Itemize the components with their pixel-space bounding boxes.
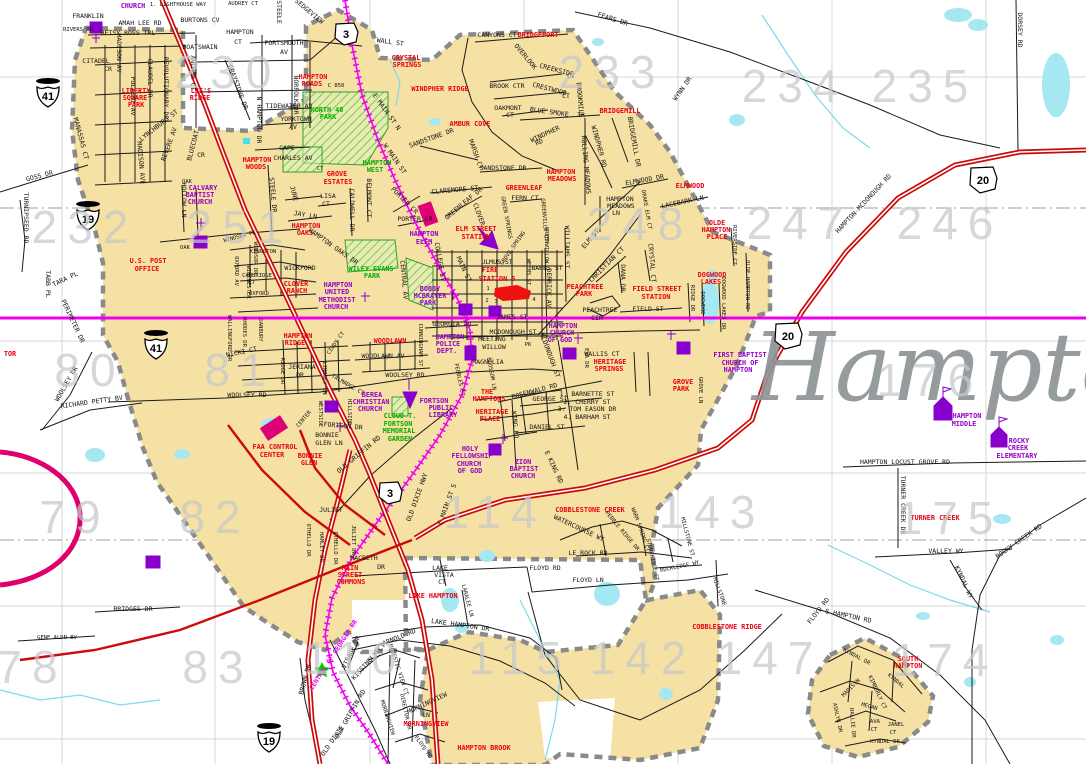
map-label: PERIMETER DR — [59, 298, 86, 344]
map-label: VALLEY WY — [928, 547, 963, 555]
church-icon — [563, 348, 576, 359]
map-label: GREENWILLOW — [543, 227, 549, 264]
map-label: 4. BARHAM ST — [564, 413, 611, 421]
map-label: WESTSIDE — [317, 401, 323, 428]
map-label: CHURCH — [358, 405, 383, 413]
map-label: C 850 — [328, 83, 345, 89]
map-label: PARK — [364, 272, 381, 280]
map-label: LAKES — [701, 278, 721, 286]
map-label: FIRE — [482, 266, 498, 274]
map-label: FERN CT — [511, 194, 538, 202]
map-label: KYNDAL WY — [953, 564, 975, 599]
map-label: 115 — [468, 632, 571, 684]
map-label: HAMPTON LOCUST GROVE RD — [860, 458, 950, 466]
map-label: GOSS DR — [25, 169, 54, 184]
map-label: HAMLET DR — [318, 532, 324, 562]
map-label: FLOYD RD — [529, 564, 560, 572]
map-label: AUDREY CT — [228, 1, 258, 7]
map-label: 114 — [443, 486, 546, 538]
map-label: LINDSEY LN — [321, 361, 327, 394]
map-label: 82 — [179, 491, 250, 543]
map-label: ROCKLEDGE WY — [660, 560, 701, 574]
map-label: 143 — [659, 486, 766, 538]
map-label: PARK — [576, 290, 593, 298]
church-icon — [459, 304, 472, 315]
map-label: AMAH LEE RD — [118, 19, 161, 27]
svg-text:3: 3 — [387, 488, 393, 500]
map-label: BROOK CTR — [489, 82, 524, 90]
map-label: WOODS — [246, 163, 266, 171]
map-label: GARDEN — [388, 435, 413, 443]
map-label: 110 — [303, 632, 406, 684]
map-label: 174 — [892, 634, 999, 686]
map-label: BONNIE — [315, 431, 339, 439]
pond — [944, 8, 972, 22]
map-label: 81 — [204, 344, 275, 396]
map-label: COBBLESTONE CREEK — [555, 506, 625, 514]
map-label: SANDSTONE DR — [480, 164, 527, 172]
map-label: MILLSTONE — [711, 577, 727, 607]
map-label: BRIDGEMILL — [600, 107, 641, 115]
map-label: FIELD STREET — [632, 285, 681, 293]
pond — [174, 449, 190, 459]
map-label: LAKE HAMPTON — [408, 592, 457, 600]
map-label: ULMUS ST — [481, 258, 512, 266]
map-label: MEMORIAL — [383, 427, 416, 435]
map-label: 1. LIGHTHOUSE WAY — [150, 2, 207, 8]
map-label: TARA PL — [51, 270, 79, 289]
map-label: CT — [871, 727, 878, 733]
map-label: PARK — [673, 385, 690, 393]
map-label: 3 — [494, 299, 497, 305]
map-label: N HAMPTON DR — [255, 97, 263, 144]
map-label: ELM STREET — [456, 225, 497, 233]
map-label: SPRINGS — [393, 61, 422, 69]
street — [668, 539, 673, 562]
map-label: U.S. POST — [130, 257, 167, 265]
map-label: JULIET DR — [350, 525, 356, 555]
ga-20-shield: 20 — [970, 167, 997, 193]
map-label: PARK — [320, 113, 337, 121]
map-label: COBBLESTONE RIDGE — [692, 623, 762, 631]
map-label: CITADEL — [82, 57, 109, 65]
map-label: ELEM — [416, 238, 432, 246]
map-label: HAMPTON — [226, 28, 253, 36]
map-label: CREEK — [1008, 444, 1029, 452]
map-label: DEPT. — [437, 347, 457, 355]
svg-text:20: 20 — [977, 175, 989, 187]
map-label: CHURCH — [511, 472, 536, 480]
map-label: WICKFORD — [284, 264, 315, 272]
map-label: PLACE — [480, 415, 500, 423]
map-label: RIDGE DR — [279, 358, 285, 385]
pond — [85, 448, 105, 462]
map-label: EVA DR — [583, 348, 589, 369]
pond — [592, 38, 604, 46]
map-label: DANA DR — [619, 264, 627, 291]
map-label: BURTONS CV — [180, 16, 219, 24]
map-label: 1 — [486, 286, 489, 292]
map-label: MORNINGVIEW — [403, 720, 449, 728]
map-label: 234 — [742, 60, 849, 112]
map-label: PK — [525, 342, 532, 348]
map-label: BELMONT CT — [365, 178, 373, 217]
map-label: STEELE — [275, 0, 283, 24]
map-label: TURNIPSEED RD — [22, 193, 30, 244]
school-building-icon — [991, 427, 1007, 447]
map-label: CT — [438, 578, 446, 586]
map-label: YORKTOWN — [280, 115, 311, 123]
map-label: WILLIAMS ST — [563, 225, 571, 268]
map-label: CHARLES AV — [273, 154, 312, 162]
map-label: 251 — [187, 201, 294, 253]
map-label: GROVE — [327, 170, 347, 178]
map-label: MEETING — [478, 335, 505, 343]
church-icon — [677, 342, 690, 354]
map-label: AMBUR COVE — [450, 120, 491, 128]
map-label: 142 — [590, 632, 697, 684]
map-label: 246 — [897, 197, 1004, 249]
pond — [429, 118, 441, 126]
church-icon — [146, 556, 160, 568]
map-label: GLEN LN — [315, 439, 342, 447]
map-label: 147 — [717, 632, 824, 684]
map-label: 247 — [747, 197, 854, 249]
map-label: AVA — [870, 719, 881, 725]
map-label: 248 — [587, 198, 694, 250]
map-label: CHURCH — [324, 303, 349, 311]
map-label: OXFORD — [249, 291, 269, 297]
map-label: RHODES DR — [241, 317, 247, 347]
pond — [659, 688, 673, 700]
map-label: REVOLUTIONARY DR — [162, 57, 170, 120]
map-label: CENTER — [260, 451, 285, 459]
map-label: 80 — [54, 344, 125, 396]
map-label: ESTATES — [324, 178, 353, 186]
map-label: 175 — [897, 492, 1004, 544]
pond — [1050, 635, 1064, 645]
map-label: CIR — [591, 314, 603, 322]
us-19-shield: 19 — [257, 723, 281, 752]
map-label: DERRICK AV — [545, 268, 553, 307]
map-label: HAMPTON — [953, 412, 982, 420]
map-label: MIDDLE — [952, 420, 977, 428]
map-label: CT — [317, 166, 324, 172]
map-label: WEST — [367, 166, 383, 174]
map-label: JULIET — [319, 506, 343, 514]
street — [40, 403, 142, 430]
map-label: OLD DIXIE — [319, 724, 346, 758]
map-label: FIELD ST — [632, 305, 663, 313]
map-label: SPRINGS — [595, 365, 624, 373]
map-label: RIDGE DR — [689, 285, 695, 312]
map-label: LISA — [320, 192, 336, 200]
pond — [916, 612, 930, 620]
hampton-city-map[interactable]: Hampton — [0, 0, 1086, 764]
map-label: OF GOD — [548, 336, 573, 344]
map-label: RIVERSIDE CT — [731, 225, 737, 265]
map-label: DORSEY RD — [1016, 12, 1024, 47]
map-label: RIVERS RD — [63, 27, 93, 33]
map-label: CAPE — [279, 144, 295, 152]
map-label: CT — [506, 111, 514, 119]
map-label: CR — [197, 151, 205, 159]
map-label: 230 — [175, 46, 282, 98]
map-label: TOR — [4, 350, 17, 358]
map-label: PARK — [128, 101, 145, 109]
map-label: HAMPTON BROOK — [457, 744, 511, 752]
us-41-shield: 41 — [36, 78, 60, 107]
map-label: FAA CONTROL — [252, 443, 297, 451]
svg-text:20: 20 — [782, 331, 794, 343]
map-label: DOGWOOD LAKES DR — [720, 277, 726, 331]
map-label: OF GOD — [458, 467, 483, 475]
map-label: GEORGIA AV — [432, 320, 471, 328]
map-label: DR — [296, 371, 304, 379]
map-label: OLDE HAMPTON RD — [744, 260, 750, 310]
map-label: FIRST BAPTIST — [713, 351, 766, 359]
map-label: WILLOW — [482, 343, 506, 351]
map-label: WEEMS ST — [525, 259, 531, 286]
map-label: DANBURY — [257, 318, 263, 342]
svg-text:41: 41 — [150, 343, 162, 355]
map-label: LE ROCK RD — [568, 549, 607, 557]
map-label: FRANKLIN — [72, 12, 103, 20]
map-label: PORTER CR — [397, 215, 432, 223]
map-label: HAMPTON — [724, 366, 753, 374]
map-label: BETSY ROSS TRL — [101, 29, 156, 37]
svg-text:41: 41 — [42, 91, 54, 103]
map-label: STATION 5 — [479, 275, 516, 283]
map-label: STATION — [642, 293, 671, 301]
map-label: JANEL — [888, 722, 905, 728]
map-label: WALL ST — [376, 36, 404, 48]
map-label: CUNNINGHAM ST — [417, 323, 423, 367]
map-label: PLACE — [707, 233, 727, 241]
map-label: CT — [890, 730, 897, 736]
map-label: CR — [104, 65, 112, 73]
map-label: MEADOWS — [548, 175, 577, 183]
map-label: JERIANA — [288, 363, 315, 371]
pond — [968, 19, 988, 31]
street — [412, 660, 415, 742]
map-label: DANIEL ST — [529, 423, 564, 431]
pond — [479, 550, 495, 562]
map-label: OXFORD AV — [233, 256, 239, 286]
map-label: BRIDGEPORT — [518, 31, 559, 39]
map-label: HAMPTON — [410, 230, 439, 238]
map-label: 3. TOM EASON DR — [558, 405, 617, 413]
map-label: GEORGE ST — [532, 395, 567, 403]
map-label: GLEN — [301, 459, 317, 467]
map-label: DOGWOOD — [699, 291, 705, 314]
church-icon — [325, 401, 338, 412]
map-label: 83 — [182, 641, 253, 693]
map-label: HILLSIDE — [346, 399, 352, 426]
map-label: DR — [377, 563, 385, 571]
map-label: OTHELLO DR — [305, 523, 311, 557]
map-label: AV — [289, 123, 297, 131]
map-label: WINDPHER RIDGE — [411, 85, 468, 93]
svg-text:19: 19 — [263, 736, 275, 748]
map-label: COMMONS — [337, 578, 366, 586]
map-label: 232 — [32, 201, 139, 253]
map-label: ELEMENTARY — [997, 452, 1039, 460]
map-label: CLOUD T. — [384, 412, 417, 420]
map-label: UNITED — [325, 288, 350, 296]
map-label: 79 — [39, 491, 110, 543]
map-label: LIBRARY — [429, 411, 459, 419]
map-label: RANCH — [287, 287, 307, 295]
map-label: GROVE LN — [697, 377, 703, 404]
map-label: WYNN DR — [671, 75, 693, 102]
map-label: JAMES ST — [496, 313, 527, 321]
map-label: WINCHESTER — [245, 265, 251, 299]
map-label: STATION — [462, 233, 491, 241]
map-label: ELMWOOD — [676, 182, 705, 190]
map-label: WOODLAWN AV — [361, 352, 404, 360]
map-label: ROADS — [302, 80, 322, 88]
svg-text:3: 3 — [343, 29, 349, 41]
map-label: BRIDGES DR — [113, 605, 152, 613]
map-label: WOODLAWN — [374, 337, 407, 345]
map-label: PARK — [420, 299, 437, 307]
map-canvas[interactable]: Hampton — [0, 0, 1086, 764]
map-label: LN — [422, 711, 430, 719]
map-label: CT — [322, 200, 330, 208]
map-label: TABB PL — [44, 270, 52, 297]
map-label: 235 — [872, 60, 979, 112]
map-label: KYNDAL DR — [870, 739, 900, 745]
map-label: 78 — [0, 641, 68, 693]
map-label: SEDGEVIEW — [293, 0, 325, 26]
map-label: FEARS DR — [596, 10, 628, 27]
map-label: MORNINGVIEW — [378, 699, 395, 736]
map-label: HAMPTONS — [473, 395, 506, 403]
map-label: CHURCH — [121, 2, 146, 10]
map-label: 2 — [485, 298, 488, 304]
pond — [729, 114, 745, 126]
map-label: CALDWELL DR — [348, 188, 356, 231]
map-label: MACBETH — [350, 554, 377, 562]
map-label: OTHELLO DR — [332, 531, 338, 565]
map-label: RIDGE — [285, 339, 305, 347]
map-label: FELLOWSHIP — [452, 452, 493, 460]
water-utility-icon — [243, 138, 250, 144]
map-label: 176 — [877, 354, 984, 406]
map-label: MADISON AV — [115, 33, 123, 72]
map-label: 233 — [559, 46, 666, 98]
map-label: TIDEWATER AV — [266, 102, 313, 110]
map-label: GREENLEAF — [506, 184, 543, 192]
map-label: FLOYD LN — [572, 576, 603, 584]
map-label: CANYONS CT — [477, 31, 516, 39]
map-label: PEACHTREE — [582, 306, 617, 314]
map-label: 1. BARNETTE ST — [560, 390, 615, 398]
pond — [1042, 53, 1070, 117]
map-label: CT — [234, 38, 242, 46]
map-label: WOOLSEY RD — [385, 371, 424, 379]
map-label: OFFICE — [135, 265, 160, 273]
